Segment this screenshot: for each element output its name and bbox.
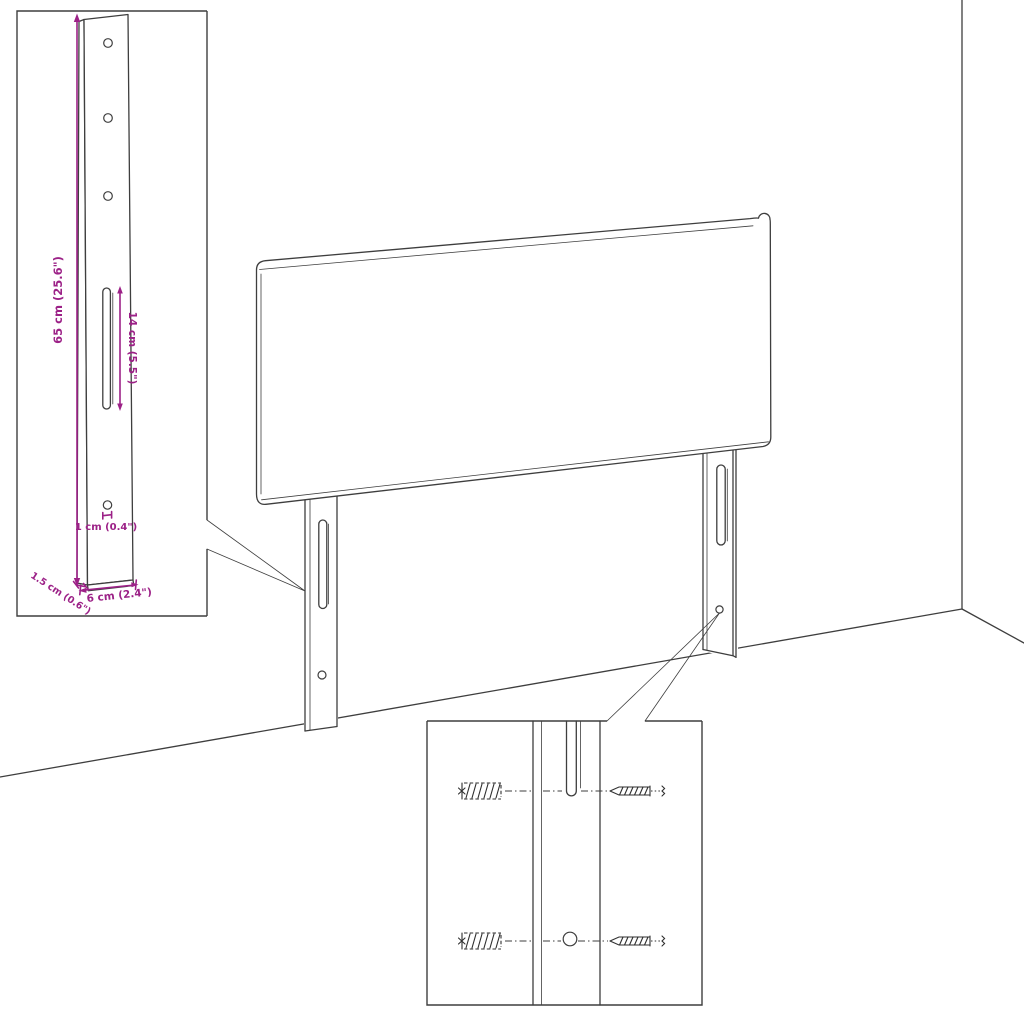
headboard-left-leg [304,486,338,733]
floor-line-right [962,609,1024,643]
detail-inset-fixings [427,613,720,1005]
dimension-label-slot-length: 14 cm (5.5") [126,312,138,385]
post-hole-4 [103,501,111,509]
panel-outline [257,213,771,504]
post-hole-1 [104,39,113,48]
post-slot [103,288,111,409]
post-hole-2 [104,114,113,123]
right-leg-hole [716,606,723,613]
left-leg-hole [318,671,326,679]
headboard-panel [257,213,771,504]
dimension-label-post-height: 65 cm (25.6") [51,256,65,344]
headboard-right-leg [702,436,738,659]
dimension-label-hole-diameter: 1 cm (0.4") [75,522,137,533]
headboard-dimension-diagram: 65 cm (25.6") 14 cm (5.5") 1 cm (0.4") 1… [0,0,1024,1024]
fixings-hole [563,932,577,946]
diagram-canvas: 65 cm (25.6") 14 cm (5.5") 1 cm (0.4") 1… [0,0,1024,1024]
left-leg-slot [319,520,327,609]
right-leg-slot [717,465,725,545]
inset-fixings-callout-lines [607,613,720,721]
inset-post-callout-lines [207,520,305,591]
post-hole-3 [104,192,113,201]
